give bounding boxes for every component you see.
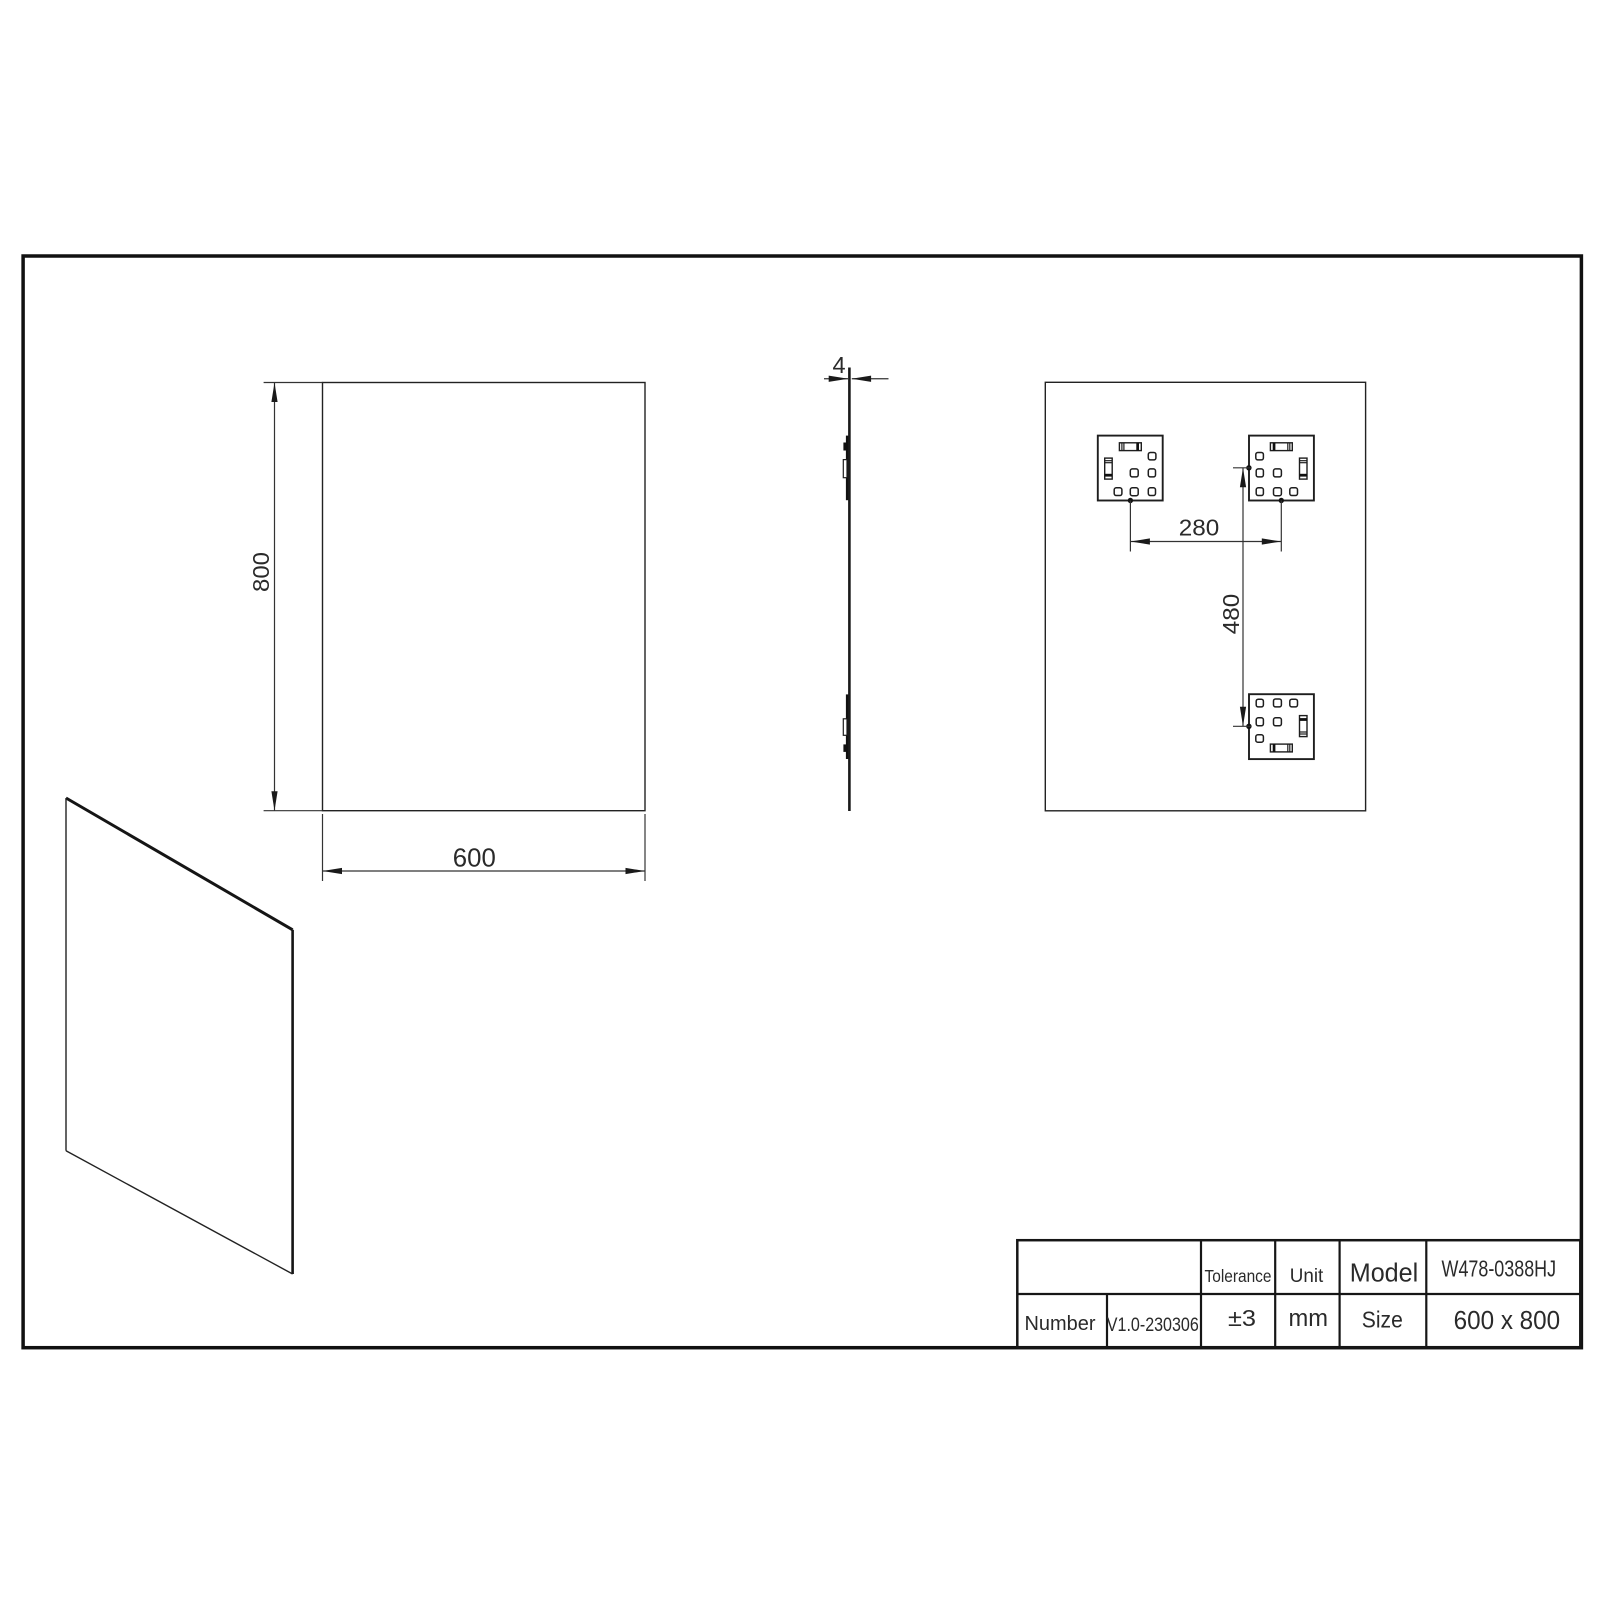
svg-text:600 x 800: 600 x 800 — [1454, 1307, 1561, 1335]
svg-text:Unit: Unit — [1290, 1265, 1324, 1287]
svg-text:W478-0388HJ: W478-0388HJ — [1442, 1256, 1557, 1282]
svg-text:V1.0-230306: V1.0-230306 — [1107, 1314, 1199, 1336]
svg-text:Tolerance: Tolerance — [1205, 1266, 1272, 1286]
svg-text:mm: mm — [1288, 1305, 1328, 1332]
svg-text:4: 4 — [832, 352, 845, 378]
svg-text:Number: Number — [1025, 1312, 1096, 1335]
svg-text:480: 480 — [1218, 594, 1244, 635]
svg-text:Size: Size — [1362, 1307, 1403, 1333]
svg-text:Model: Model — [1350, 1260, 1419, 1288]
svg-text:280: 280 — [1179, 515, 1220, 541]
svg-text:800: 800 — [248, 552, 274, 592]
svg-text:±3: ±3 — [1228, 1305, 1256, 1331]
svg-text:600: 600 — [453, 845, 496, 873]
